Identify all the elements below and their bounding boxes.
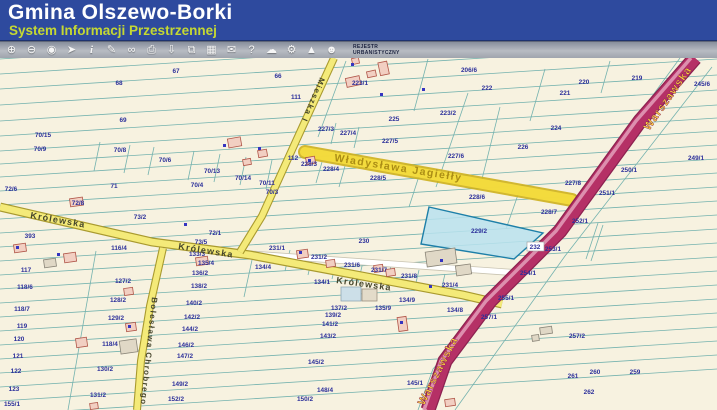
full-extent-icon[interactable]: ◉: [45, 43, 58, 57]
parcel-label: 118/7: [14, 306, 30, 313]
parcel-label: 228/7: [541, 209, 557, 216]
parcel-label: 227/4: [340, 130, 356, 137]
pointer-select-icon[interactable]: ➤: [65, 43, 78, 57]
settings-icon[interactable]: ⚙: [285, 43, 298, 57]
parcel-label: 228/5: [370, 175, 386, 182]
zoom-out-icon[interactable]: ⊖: [25, 43, 38, 57]
parcel-label: 70/4: [191, 182, 204, 189]
parcel-label: 147/2: [177, 353, 193, 360]
parcel-label: 228/4: [323, 166, 339, 173]
parcel-label: 252/1: [572, 218, 588, 225]
parcel-label: 127/2: [115, 278, 131, 285]
parcel-label: 223/1: [352, 80, 368, 87]
link-icon[interactable]: ∞: [125, 43, 138, 57]
parcel-label: 73/2: [134, 214, 147, 221]
parcel-label: 141/2: [322, 321, 338, 328]
parcel-label: 121: [13, 353, 24, 360]
parcel-label: 112: [288, 155, 299, 162]
parcel-label: 229/2: [471, 228, 487, 235]
app-title: Gmina Olszewo-Borki: [0, 0, 717, 24]
rejestr-line2: URBANISTYCZNY: [353, 50, 400, 56]
parcel-label: 257/2: [569, 333, 585, 340]
print-icon[interactable]: ⎙: [145, 43, 158, 57]
parcel-label: 221: [560, 90, 571, 97]
parcel-label: 260: [590, 369, 601, 376]
parcel-label: 220: [579, 79, 590, 86]
help-icon[interactable]: ?: [245, 43, 258, 57]
parcel-label: 131/2: [90, 392, 106, 399]
parcel-labels: 6768666911170/1570/970/870/670/1370/1470…: [4, 67, 710, 408]
parcel-label: 231/2: [311, 254, 327, 261]
parcel-label: 138/2: [191, 283, 207, 290]
road-number-232: 232: [530, 244, 541, 251]
parcel-label: 227/8: [565, 180, 581, 187]
app-subtitle: System Informacji Przestrzennej: [0, 24, 717, 38]
parcel-label: 223/2: [440, 110, 456, 117]
parcel-label: 149/2: [172, 381, 188, 388]
parcel-label: 224: [551, 125, 562, 132]
parcel-label: 206/6: [461, 67, 477, 74]
parcel-label: 259: [630, 369, 641, 376]
parcel-label: 144/2: [182, 326, 198, 333]
parcel-label: 228/6: [469, 194, 485, 201]
parcel-label: 68: [115, 80, 123, 87]
parcel-label: 118/4: [102, 341, 118, 348]
parcel-label: 118/6: [17, 284, 33, 291]
parcel-label: 72/1: [209, 230, 222, 237]
share-contact-icon[interactable]: ☻: [325, 43, 338, 57]
parcel-label: 70/11: [259, 180, 275, 187]
parcel-label: 231/6: [344, 262, 360, 269]
parcel-label: 155/1: [4, 401, 20, 408]
toolbar: ⊕⊖◉➤i✎∞⎙⇩⧉▦✉?☁⚙▲☻ REJESTR URBANISTYCZNY: [0, 41, 717, 58]
parcel-label: 130/2: [97, 366, 113, 373]
parcel-label: 139/2: [325, 312, 341, 319]
parcel-label: 66: [274, 73, 282, 80]
parcel-label: 145/1: [407, 380, 423, 387]
parcel-label: 231/1: [269, 245, 285, 252]
parcel-label: 257/1: [481, 314, 497, 321]
parcel-label: 227/3: [318, 126, 334, 133]
parcel-label: 122: [11, 368, 22, 375]
parcel-label: 145/2: [308, 359, 324, 366]
parcel-label: 143/2: [320, 333, 336, 340]
parcel-label: 69: [119, 117, 127, 124]
parcel-label: 119: [17, 323, 28, 330]
parcel-label: 111: [291, 94, 301, 101]
north-arrow-icon[interactable]: ▲: [305, 43, 318, 57]
parcel-label: 222: [482, 85, 493, 92]
parcel-label: 231/7: [371, 267, 387, 274]
parcel-label: 135/9: [375, 305, 391, 312]
parcel-label: 262: [584, 389, 595, 396]
parcel-label: 148/4: [317, 387, 333, 394]
parcel-label: 70/3: [266, 189, 279, 196]
identify-icon[interactable]: i: [85, 43, 98, 57]
parcel-label: 226: [518, 144, 529, 151]
parcel-label: 250/1: [621, 167, 637, 174]
parcel-label: 128/2: [110, 297, 126, 304]
parcel-label: 393: [25, 233, 36, 240]
draw-measure-icon[interactable]: ✎: [105, 43, 118, 57]
layout-grid-icon[interactable]: ▦: [205, 43, 218, 57]
parcel-label: 135/4: [198, 260, 214, 267]
parcel-label: 134/4: [255, 264, 271, 271]
parcel-label: 150/2: [297, 396, 313, 403]
app-header: Gmina Olszewo-Borki System Informacji Pr…: [0, 0, 717, 41]
parcel-label: 136/2: [192, 270, 208, 277]
parcel-label: 249/1: [688, 155, 704, 162]
parcel-label: 231/8: [401, 273, 417, 280]
toolbar-buttons: ⊕⊖◉➤i✎∞⎙⇩⧉▦✉?☁⚙▲☻: [5, 43, 338, 57]
parcel-label: 142/2: [184, 314, 200, 321]
parcel-label: 129/2: [108, 315, 124, 322]
parcel-label: 120: [14, 336, 25, 343]
parcel-label: 245/6: [694, 81, 710, 88]
parcel-label: 225: [389, 116, 400, 123]
parcel-label: 67: [172, 68, 180, 75]
parcel-label: 254/1: [520, 270, 536, 277]
parcel-label: 134/8: [447, 307, 463, 314]
parcel-label: 146/2: [178, 342, 194, 349]
parcel-label: 231/4: [442, 282, 458, 289]
cloud-export-icon[interactable]: ☁: [265, 43, 278, 57]
map-canvas[interactable]: 232 6768666911170/1570/970/870/670/1370/…: [0, 58, 717, 410]
rejestr-urbanistyczny-button[interactable]: REJESTR URBANISTYCZNY: [353, 44, 400, 56]
parcel-label: 227/5: [382, 138, 398, 145]
parcel-label: 70/8: [114, 147, 127, 154]
copy-view-icon[interactable]: ⧉: [185, 43, 198, 57]
comment-icon[interactable]: ✉: [225, 43, 238, 57]
parcel-label: 70/13: [204, 168, 220, 175]
parcel-label: 71: [110, 183, 118, 190]
street-label: Królewska: [30, 210, 87, 230]
zoom-in-icon[interactable]: ⊕: [5, 43, 18, 57]
road-number-box: 232: [527, 242, 544, 251]
download-icon[interactable]: ⇩: [165, 43, 178, 57]
parcel-label: 261: [568, 373, 579, 380]
parcel-label: 228/3: [301, 161, 317, 168]
parcel-label: 255/1: [498, 295, 514, 302]
parcel-label: 251/1: [599, 190, 615, 197]
parcel-label: 117: [21, 267, 32, 274]
parcel-label: 70/6: [159, 157, 172, 164]
parcel-label: 253/1: [545, 246, 561, 253]
parcel-label: 70/9: [34, 146, 47, 153]
parcel-label: 152/2: [168, 396, 184, 403]
parcel-label: 227/6: [448, 153, 464, 160]
parcel-label: 230: [359, 238, 370, 245]
parcel-label: 134/9: [399, 297, 415, 304]
parcel-label: 70/14: [235, 175, 251, 182]
parcel-label: 140/2: [186, 300, 202, 307]
parcel-label: 219: [632, 75, 643, 82]
parcel-label: 72/6: [5, 186, 18, 193]
parcel-label: 72/8: [72, 200, 85, 207]
parcel-label: 137/2: [331, 305, 347, 312]
parcel-label: 134/1: [314, 279, 330, 286]
parcel-label: 123: [9, 386, 20, 393]
parcel-label: 116/4: [111, 245, 127, 252]
parcel-label: 70/15: [35, 132, 51, 139]
